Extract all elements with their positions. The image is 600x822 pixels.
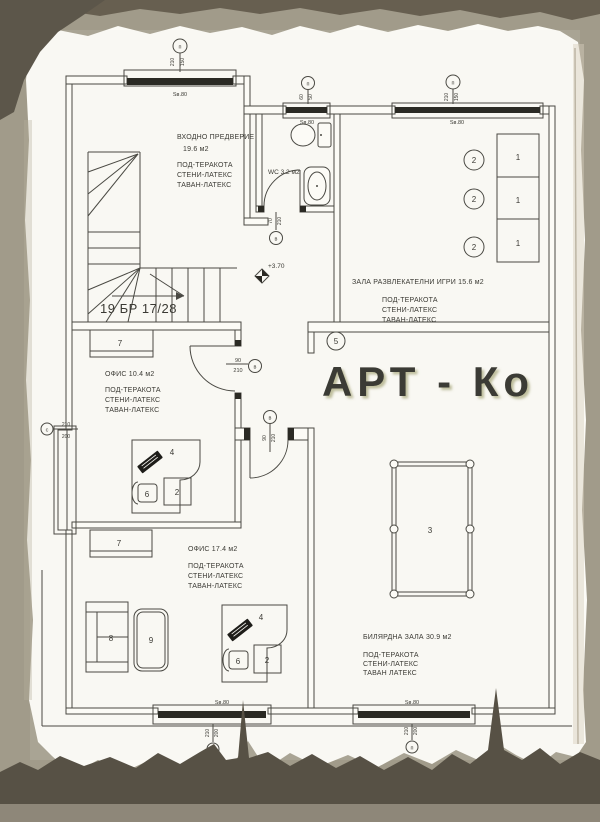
door-dim: 90 <box>262 435 268 441</box>
finish-label: СТЕНИ-ЛАТЕКС <box>105 397 160 404</box>
door-dim: 70 <box>268 218 274 224</box>
window-mark: с <box>46 428 49 434</box>
door-mark: в <box>269 416 272 422</box>
furniture-mark: 1 <box>516 239 521 248</box>
finish-label: ПОД-ТЕРАКОТА <box>363 652 419 659</box>
window-dim: 210 <box>404 727 410 736</box>
door-mark: в <box>275 237 278 243</box>
door-dim: 90 <box>235 358 241 364</box>
finish-label: ТАВАН-ЛАТЕКС <box>105 407 159 414</box>
toilet-tank <box>318 123 331 147</box>
elevation-label: +3.70 <box>268 263 285 270</box>
window-dim: 200 <box>62 434 71 440</box>
door-dim: 210 <box>277 217 283 226</box>
furniture-mark: 8 <box>109 634 114 643</box>
room-label-office2: ОФИС 17.4 м2 <box>188 546 237 553</box>
finish-label: ТАВАН-ЛАТЕКС <box>188 583 242 590</box>
window-dim: 200 <box>214 729 220 738</box>
window-sill-label: Sв.80 <box>405 700 419 706</box>
room-label-billiard: БИЛЯРДНА ЗАЛА 30.9 м2 <box>363 634 452 641</box>
window-mark: п <box>411 746 414 752</box>
finish-label: ПОД-ТЕРАКОТА <box>105 387 161 394</box>
finish-label: ПОД-ТЕРАКОТА <box>382 297 438 304</box>
furniture-mark: 2 <box>472 156 477 165</box>
room-label-games: ЗАЛА РАЗВЛЕКАТЕЛНИ ИГРИ 15.6 м2 <box>352 279 484 286</box>
window-sill-label: Sв.80 <box>173 92 187 98</box>
stairs-label: 19 БР 17/28 <box>100 301 177 316</box>
finish-label: ПОД-ТЕРАКОТА <box>177 162 233 169</box>
toilet-bowl <box>291 124 315 146</box>
window-mark: п <box>179 45 182 51</box>
window-mark: п <box>307 82 310 88</box>
furniture-mark: 2 <box>265 656 270 665</box>
window-dim: 210 <box>62 422 71 428</box>
window-dim: 150 <box>454 93 460 102</box>
furniture-mark: 6 <box>236 657 241 666</box>
furniture-mark: 4 <box>259 613 264 622</box>
finish-label: ТАВАН-ЛАТЕКС <box>382 317 436 324</box>
window-dim: 200 <box>413 727 419 736</box>
door-mark: в <box>254 365 257 371</box>
furniture-mark: 5 <box>334 337 339 346</box>
watermark-text: АРТ - Ко <box>322 358 534 405</box>
bottom-strip <box>0 804 600 822</box>
finish-label: СТЕНИ-ЛАТЕКС <box>382 307 437 314</box>
furniture-mark: 7 <box>117 539 122 548</box>
window-sill-label: Sв.80 <box>450 120 464 126</box>
furniture-mark: 1 <box>516 153 521 162</box>
furniture-mark: 2 <box>472 243 477 252</box>
floor-plan-drawing: п 210 150 Sв.80 п 60 50 Sв.80 п 210 150 … <box>0 0 600 822</box>
room-label-vestibule-name: ВХОДНО ПРЕДВЕРИЕ <box>177 134 254 141</box>
window-sill-label: Sв.80 <box>215 700 229 706</box>
finish-label: СТЕНИ-ЛАТЕКС <box>363 661 418 668</box>
finish-label: ТАВАН-ЛАТЕКС <box>177 182 231 189</box>
furniture-mark: 1 <box>516 196 521 205</box>
window-dim: 210 <box>444 93 450 102</box>
window-mark: п <box>452 81 455 87</box>
left-edge-shading <box>24 120 32 700</box>
furniture-mark: 6 <box>145 490 150 499</box>
window-dim: 60 <box>299 94 305 100</box>
door-dim: 210 <box>233 368 242 374</box>
right-crease-shading <box>573 44 584 744</box>
finish-label: ПОД-ТЕРАКОТА <box>188 563 244 570</box>
furniture-mark: 3 <box>428 526 433 535</box>
window-dim: 150 <box>180 58 186 67</box>
room-label-office1: ОФИС 10.4 м2 <box>105 371 154 378</box>
furniture-mark: 9 <box>149 636 154 645</box>
scanned-floor-plan: п 210 150 Sв.80 п 60 50 Sв.80 п 210 150 … <box>0 0 600 822</box>
furniture-mark: 2 <box>472 195 477 204</box>
window-dim: 210 <box>170 58 176 67</box>
finish-label: ТАВАН ЛАТЕКС <box>363 670 417 677</box>
window-dim: 210 <box>205 729 211 738</box>
furniture-mark: 4 <box>170 448 175 457</box>
furniture-mark: 7 <box>118 339 123 348</box>
furniture-mark: 2 <box>175 488 180 497</box>
door-dim: 210 <box>271 434 277 443</box>
window-dim: 50 <box>308 94 314 100</box>
finish-label: СТЕНИ-ЛАТЕКС <box>177 172 232 179</box>
room-label-wc: WC 3.2 м2 <box>268 169 300 176</box>
finish-label: СТЕНИ-ЛАТЕКС <box>188 573 243 580</box>
room-label-vestibule-area: 19.6 м2 <box>183 146 209 153</box>
